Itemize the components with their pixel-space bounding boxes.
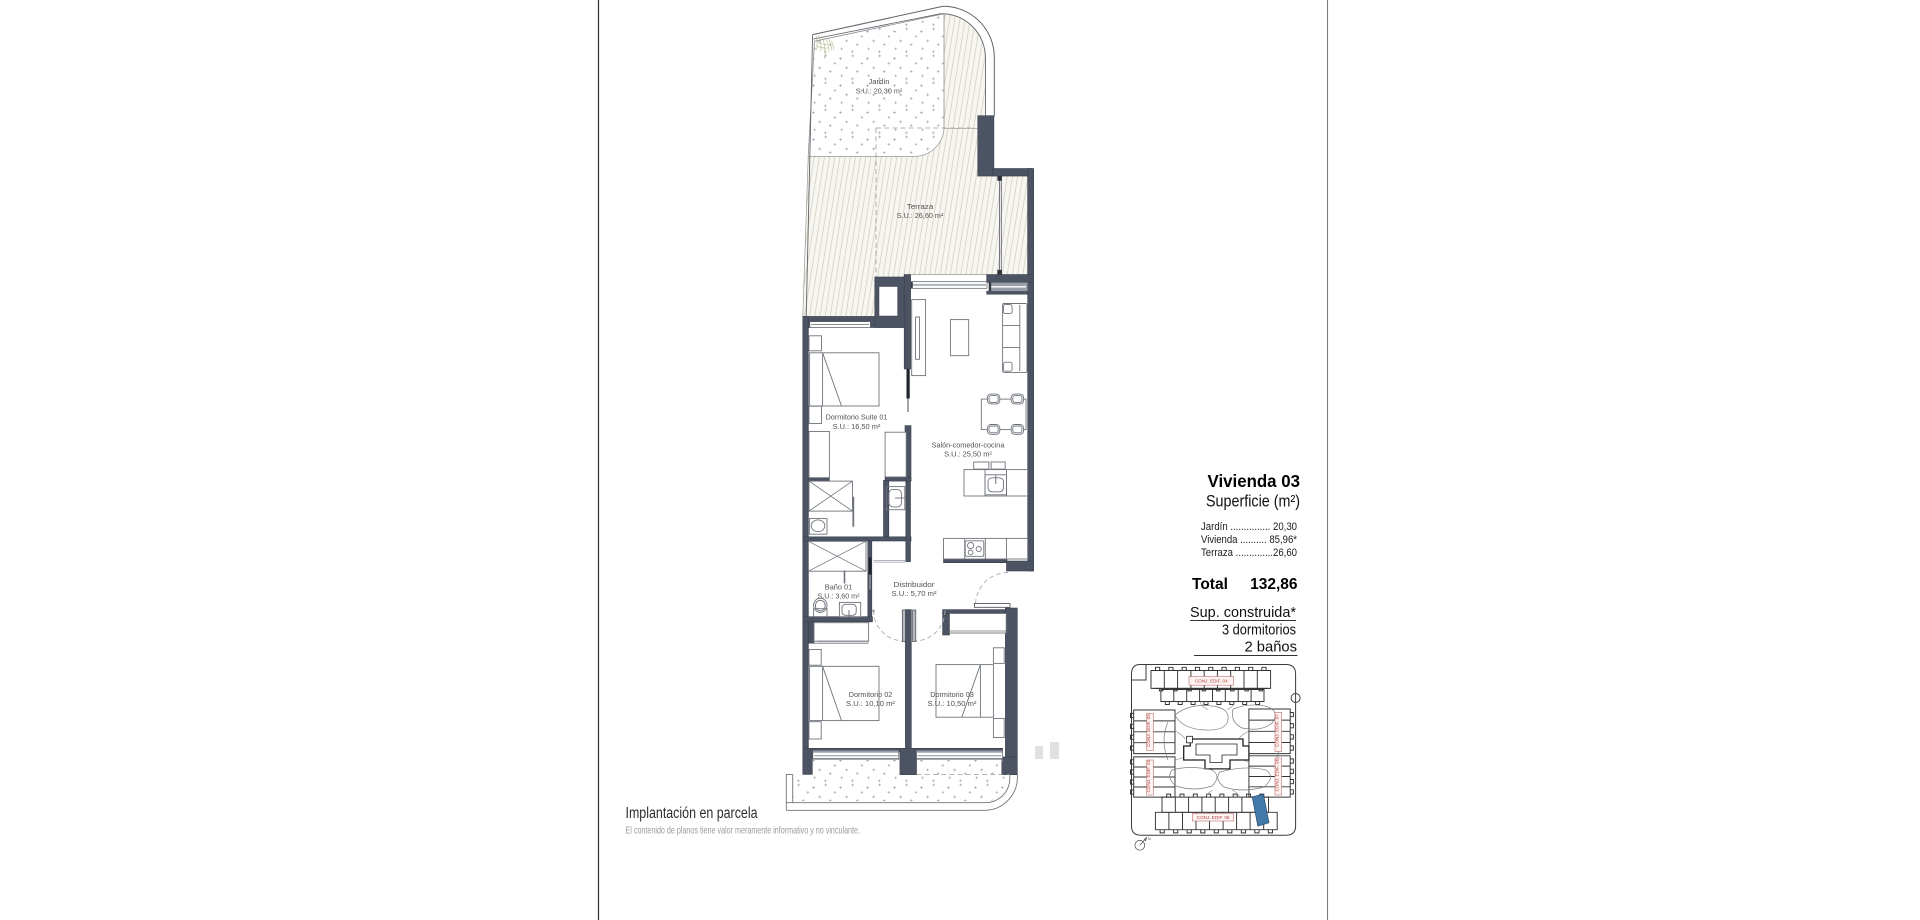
svg-text:Superficie (m²): Superficie (m²) <box>1206 492 1300 511</box>
svg-text:CONJ. EDIF. 04: CONJ. EDIF. 04 <box>1195 679 1228 684</box>
svg-text:3 dormitorios: 3 dormitorios <box>1222 622 1296 639</box>
svg-text:S.U.: 16,50 m²: S.U.: 16,50 m² <box>833 422 881 431</box>
svg-text:N: N <box>1148 837 1151 841</box>
svg-text:Terraza ..............26,60: Terraza ..............26,60 <box>1201 547 1297 559</box>
svg-text:Dormitorio 02: Dormitorio 02 <box>849 690 893 699</box>
svg-text:S.U.: 26,60 m²: S.U.: 26,60 m² <box>897 211 944 220</box>
svg-text:CONJ. EDIF. 05: CONJ. EDIF. 05 <box>1197 815 1230 820</box>
svg-text:Vivienda .......... 85,96*: Vivienda .......... 85,96* <box>1201 534 1298 546</box>
svg-text:Total: Total <box>1192 576 1228 593</box>
svg-text:132,86: 132,86 <box>1250 576 1298 593</box>
svg-text:S.U.: 5,70 m²: S.U.: 5,70 m² <box>892 589 938 598</box>
svg-text:Sup. construida*: Sup. construida* <box>1190 604 1296 621</box>
svg-text:S.U.: 25,50 m²: S.U.: 25,50 m² <box>944 450 992 459</box>
svg-text:CONJ. EDIF. 06: CONJ. EDIF. 06 <box>1274 758 1279 791</box>
svg-text:CONJ. EDIF. 02: CONJ. EDIF. 02 <box>1146 759 1151 792</box>
svg-text:CONJ. EDIF. 03: CONJ. EDIF. 03 <box>1146 714 1151 747</box>
svg-text:Dormitorio Suite 01: Dormitorio Suite 01 <box>826 413 888 422</box>
svg-text:Baño 01: Baño 01 <box>825 582 852 591</box>
svg-text:S.U.: 10,50 m²: S.U.: 10,50 m² <box>928 699 977 708</box>
svg-text:Distribuidor: Distribuidor <box>894 580 936 589</box>
svg-text:Vivienda 03: Vivienda 03 <box>1208 471 1301 491</box>
svg-text:S.U.: 3,60 m²: S.U.: 3,60 m² <box>818 592 860 601</box>
svg-text:Jardín: Jardín <box>869 77 890 86</box>
svg-text:S.U.: 10,10 m²: S.U.: 10,10 m² <box>846 699 895 708</box>
svg-text:Dormitorio 03: Dormitorio 03 <box>930 690 974 699</box>
svg-text:Terraza: Terraza <box>907 202 934 211</box>
svg-text:Jardín ............... 20,30: Jardín ............... 20,30 <box>1201 521 1297 533</box>
svg-text:Salón-comedor-cocina: Salón-comedor-cocina <box>932 440 1006 449</box>
svg-text:Implantación en parcela: Implantación en parcela <box>626 805 758 822</box>
svg-text:S.U.: 20,30 m²: S.U.: 20,30 m² <box>856 86 903 95</box>
svg-text:CONJ. EDIF. 07: CONJ. EDIF. 07 <box>1274 714 1279 747</box>
svg-text:2 baños: 2 baños <box>1245 639 1298 656</box>
svg-text:El contenido de planos tiene v: El contenido de planos tiene valor meram… <box>626 825 861 837</box>
